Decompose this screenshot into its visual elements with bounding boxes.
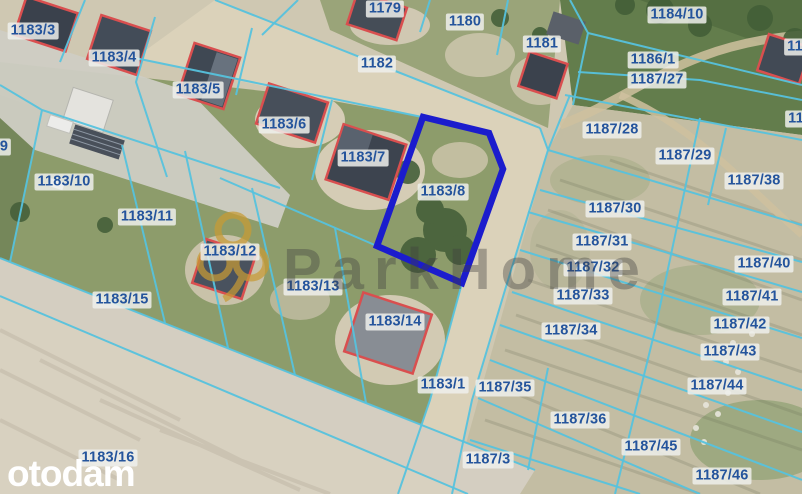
parcel-label-1183-1: 1183/1 — [418, 377, 469, 394]
parcel-label-1187-44: 1187/44 — [687, 378, 746, 395]
parcel-label-1183-11: 1183/11 — [118, 209, 176, 226]
parcel-label-1183-7: 1183/7 — [338, 150, 389, 167]
parcel-label-1187-40: 1187/40 — [734, 256, 793, 273]
parcel-label-1183-8: 1183/8 — [418, 184, 469, 201]
parcel-label-1187-36: 1187/36 — [550, 412, 609, 429]
parcel-label-1187-43: 1187/43 — [700, 344, 759, 361]
parcel-label-1187-30: 1187/30 — [585, 201, 644, 218]
parcel-label-1187-41: 1187/41 — [722, 289, 781, 306]
parcel-label-1184-10: 1184/10 — [647, 7, 706, 24]
parcel-label-1183-4: 1183/4 — [89, 50, 140, 67]
parcel-label-1183-6: 1183/6 — [259, 117, 310, 134]
parcel-label-1187-46: 1187/46 — [692, 468, 751, 485]
parcel-label-1187-34: 1187/34 — [541, 323, 600, 340]
parcel-label-1183-3: 1183/3 — [8, 23, 59, 40]
parcel-label-1187-29: 1187/29 — [655, 148, 714, 165]
parcel-label-1181: 1181 — [523, 36, 561, 53]
parcel-label-1182: 1182 — [358, 56, 396, 73]
parcel-label-1187-28: 1187/28 — [582, 122, 641, 139]
parcel-label-1183-15: 1183/15 — [92, 292, 151, 309]
parcel-label-1187-35: 1187/35 — [475, 380, 534, 397]
parcel-label-1187-45: 1187/45 — [621, 439, 680, 456]
parcel-label-1183-12: 1183/12 — [200, 244, 259, 261]
parcel-label-1180: 1180 — [446, 14, 484, 31]
parcel-label-1187-3: 1187/3 — [463, 452, 514, 469]
brand-logo: otodam — [7, 453, 135, 494]
parcel-label-1187-38: 1187/38 — [724, 173, 783, 190]
cadastral-map-screenshot[interactable]: 1183/31183/41183/511791180118211811183/6… — [0, 0, 802, 494]
parcel-label-11: 11 — [784, 39, 802, 56]
parcel-label-1179: 1179 — [366, 1, 404, 18]
parcel-label-1187-27: 1187/27 — [627, 72, 686, 89]
watermark-text: ParkHome — [283, 236, 650, 303]
parcel-label-9: 9 — [0, 139, 11, 156]
parcel-label-1183-14: 1183/14 — [365, 314, 424, 331]
parcel-label-1183-10: 1183/10 — [34, 174, 93, 191]
parcel-label-11: 11 — [785, 111, 802, 128]
parcel-label-1187-42: 1187/42 — [710, 317, 769, 334]
parcel-label-1186-1: 1186/1 — [628, 52, 679, 69]
parcel-label-1183-5: 1183/5 — [173, 82, 224, 99]
